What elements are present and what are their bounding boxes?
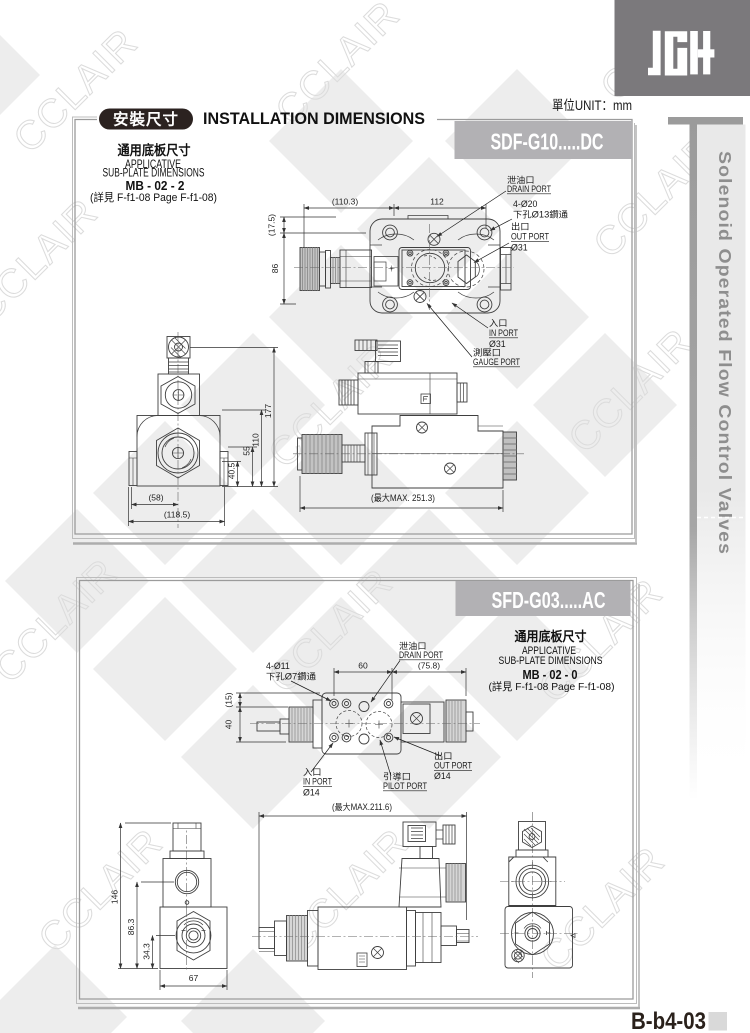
svg-text:Solenoid Operated Flow Control: Solenoid Operated Flow Control Valves <box>715 151 735 555</box>
svg-text:CCLAIR: CCLAIR <box>0 190 106 331</box>
svg-text:(58): (58) <box>148 493 163 503</box>
svg-text:SFD-G03.....AC: SFD-G03.....AC <box>492 587 606 613</box>
svg-text:OUT PORT: OUT PORT <box>434 761 473 771</box>
svg-text:40.5: 40.5 <box>227 462 237 479</box>
svg-text:CCLAIR: CCLAIR <box>532 838 673 979</box>
svg-text:60: 60 <box>358 661 368 671</box>
svg-text:(詳見 F-f1-08 Page F-f1-08): (詳見 F-f1-08 Page F-f1-08) <box>90 190 217 204</box>
svg-text:(118.5): (118.5) <box>164 510 190 520</box>
svg-text:CCLAIR: CCLAIR <box>30 820 171 961</box>
svg-text:入口: 入口 <box>489 318 508 328</box>
svg-text:Ø14: Ø14 <box>434 771 451 781</box>
svg-text:單位UNIT：mm: 單位UNIT：mm <box>552 98 632 113</box>
svg-text:B-b4-03: B-b4-03 <box>631 1008 706 1033</box>
svg-text:(15): (15) <box>224 692 234 707</box>
svg-text:146: 146 <box>110 890 120 904</box>
svg-text:下孔Ø13鑽通: 下孔Ø13鑽通 <box>513 209 568 220</box>
svg-text:SUB-PLATE DIMENSIONS: SUB-PLATE DIMENSIONS <box>499 655 603 667</box>
svg-text:112: 112 <box>430 197 444 207</box>
svg-text:67: 67 <box>189 973 199 983</box>
svg-text:177: 177 <box>263 404 273 418</box>
svg-text:86: 86 <box>270 264 280 274</box>
svg-text:Ø31: Ø31 <box>511 243 528 253</box>
svg-text:測壓口: 測壓口 <box>473 347 501 358</box>
svg-text:IN PORT: IN PORT <box>303 777 333 787</box>
svg-text:MB - 02 - 0: MB - 02 - 0 <box>523 668 578 682</box>
svg-text:出口: 出口 <box>511 221 530 232</box>
svg-text:(17.5): (17.5) <box>267 214 277 236</box>
svg-text:4-Ø20: 4-Ø20 <box>513 199 538 209</box>
svg-text:CCLAIR: CCLAIR <box>5 20 146 161</box>
svg-text:(110.3): (110.3) <box>332 197 358 207</box>
svg-text:GAUGE PORT: GAUGE PORT <box>473 357 520 367</box>
svg-text:110: 110 <box>251 433 261 447</box>
svg-text:PILOT PORT: PILOT PORT <box>383 781 428 791</box>
svg-text:34.3: 34.3 <box>142 943 152 960</box>
svg-text:DRAIN PORT: DRAIN PORT <box>507 184 552 194</box>
svg-text:安裝尺寸: 安裝尺寸 <box>113 110 179 129</box>
svg-text:4-Ø11: 4-Ø11 <box>266 661 290 671</box>
svg-text:86.3: 86.3 <box>126 918 136 935</box>
svg-text:(詳見 F-f1-08 Page F-f1-08): (詳見 F-f1-08 Page F-f1-08) <box>489 680 615 693</box>
svg-text:SDF-G10.....DC: SDF-G10.....DC <box>491 129 604 155</box>
svg-text:OUT PORT: OUT PORT <box>511 232 550 242</box>
svg-text:通用底板尺寸: 通用底板尺寸 <box>515 629 587 644</box>
svg-text:下孔Ø7鑽通: 下孔Ø7鑽通 <box>266 671 316 682</box>
svg-text:入口: 入口 <box>303 767 322 777</box>
svg-text:40: 40 <box>224 720 234 730</box>
svg-text:IN PORT: IN PORT <box>489 328 519 338</box>
svg-text:Ø14: Ø14 <box>303 788 320 798</box>
svg-text:INSTALLATION DIMENSIONS: INSTALLATION DIMENSIONS <box>203 110 425 128</box>
svg-text:引導口: 引導口 <box>383 771 411 782</box>
svg-text:出口: 出口 <box>434 750 453 761</box>
svg-text:DRAIN PORT: DRAIN PORT <box>399 650 444 660</box>
svg-text:(75.8): (75.8) <box>418 661 440 671</box>
svg-text:通用底板尺寸: 通用底板尺寸 <box>118 142 191 158</box>
svg-text:(最大MAX. 251.3): (最大MAX. 251.3) <box>371 492 435 503</box>
svg-text:MB - 02 - 2: MB - 02 - 2 <box>126 178 185 193</box>
svg-text:(最大MAX.211.6): (最大MAX.211.6) <box>332 801 392 812</box>
